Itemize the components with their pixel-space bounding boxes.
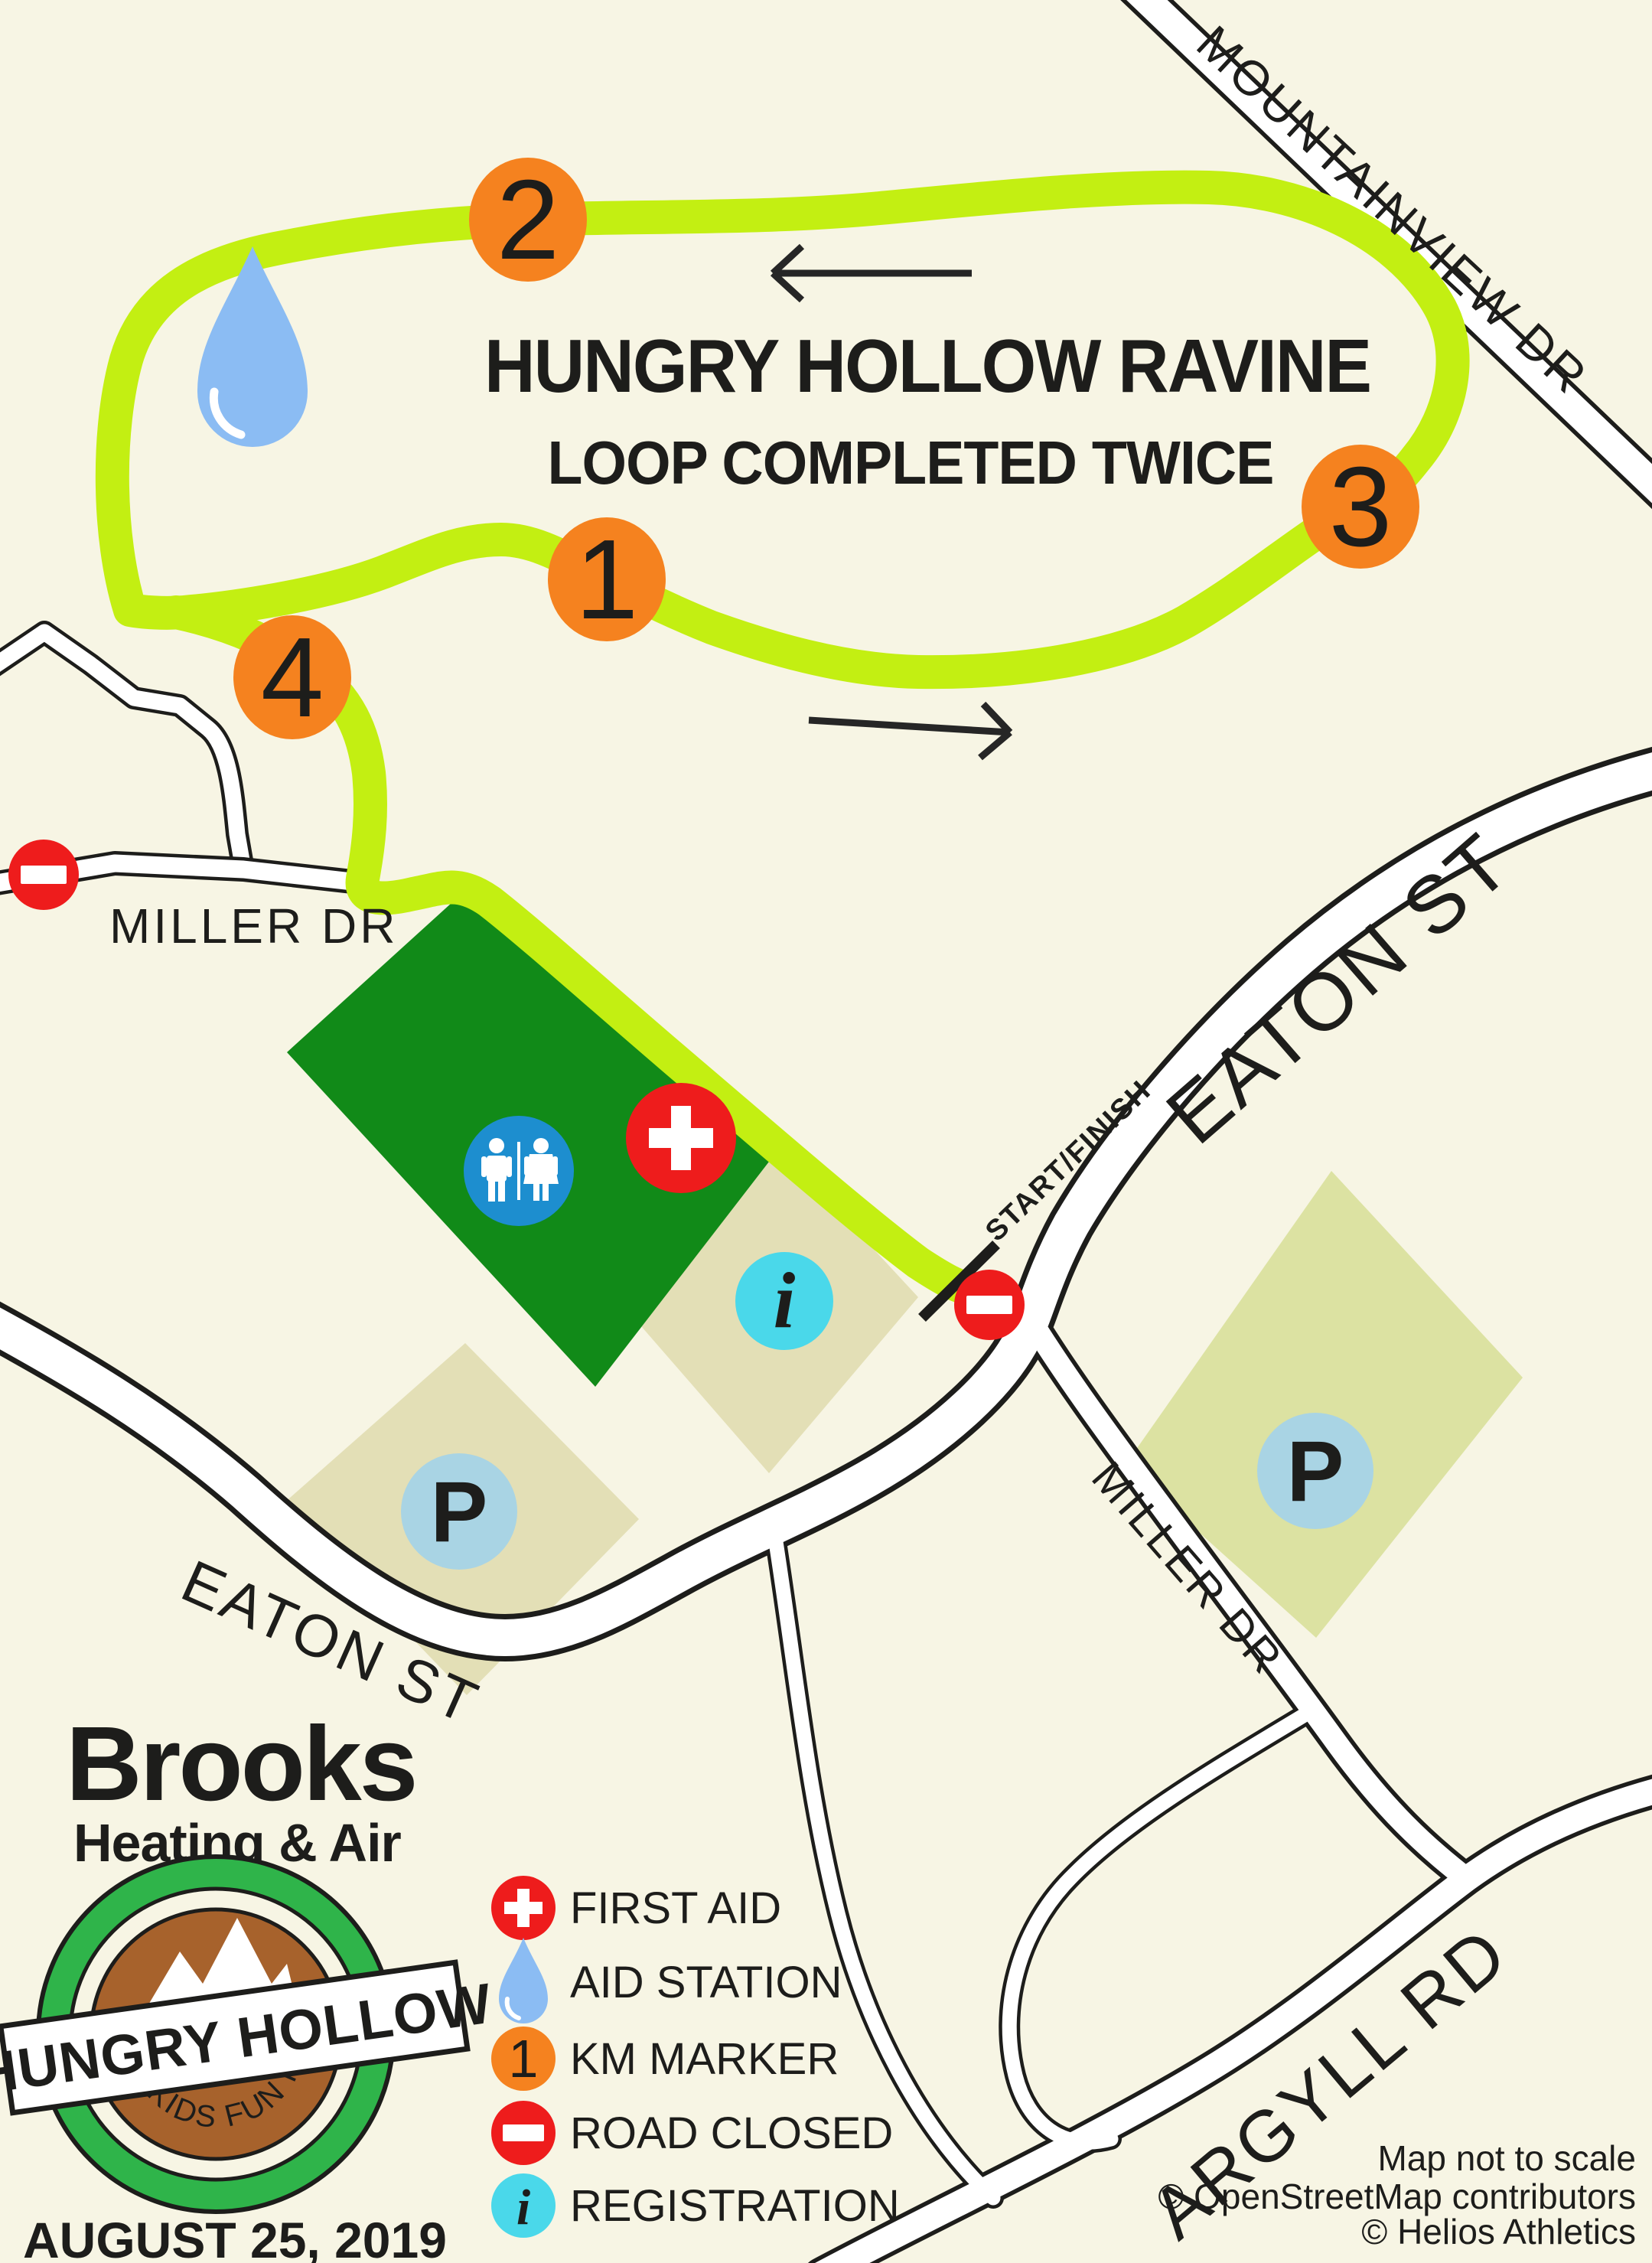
parking-letter: P	[1287, 1423, 1344, 1519]
legend-label: KM MARKER	[570, 2034, 839, 2084]
parking-icon-east: P	[1257, 1413, 1373, 1529]
event-date: AUGUST 25, 2019	[23, 2212, 447, 2263]
legend-label: REGISTRATION	[570, 2181, 900, 2231]
legend-km-number: 1	[509, 2029, 539, 2089]
map-title: HUNGRY HOLLOW RAVINE	[484, 324, 1370, 408]
sponsor-logo: Brooks Heating & Air	[66, 1705, 415, 1873]
km-marker-2-number: 2	[497, 157, 559, 283]
km-marker-1-number: 1	[575, 517, 638, 643]
legend-label: AID STATION	[570, 1958, 842, 2007]
km-marker-4-number: 4	[261, 615, 324, 741]
parking-icon-west: P	[401, 1453, 517, 1570]
legend-label: ROAD CLOSED	[570, 2108, 893, 2158]
first-aid-icon	[626, 1083, 736, 1193]
legend-item-km-marker: 1 KM MARKER	[491, 2027, 839, 2091]
course-map-poster: i P P 1 2 3 4 HUNGRY HOLLOW RAVINE LOOP …	[0, 0, 1652, 2263]
parking-letter: P	[431, 1464, 488, 1560]
legend-info-letter: i	[516, 2180, 531, 2235]
road-closed-icon-start	[954, 1270, 1025, 1340]
attribution-line3: © Helios Athletics	[1361, 2212, 1636, 2252]
sponsor-name: Brooks	[66, 1705, 415, 1823]
attribution-line2: © OpenStreetMap contributors	[1158, 2177, 1636, 2216]
registration-icon: i	[735, 1252, 833, 1350]
registration-letter: i	[774, 1257, 796, 1345]
restroom-icon	[464, 1116, 574, 1226]
legend-label: FIRST AID	[570, 1883, 781, 1933]
legend-item-first-aid: FIRST AID	[491, 1876, 781, 1940]
km-marker-3-number: 3	[1329, 444, 1392, 570]
road-label-miller-west: MILLER DR	[109, 898, 398, 954]
attribution-line1: Map not to scale	[1377, 2138, 1636, 2178]
map-subtitle: LOOP COMPLETED TWICE	[548, 429, 1274, 497]
road-closed-icon-west	[8, 840, 79, 910]
